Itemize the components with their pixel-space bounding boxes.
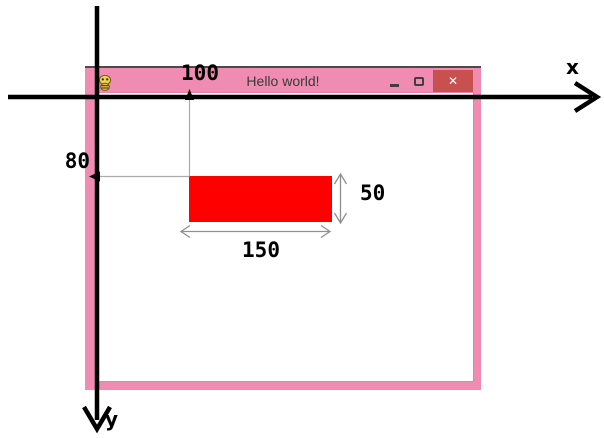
x-axis-label: x: [566, 57, 579, 77]
minimize-button[interactable]: [390, 84, 399, 87]
app-window: Hello world! ✕: [85, 66, 481, 390]
red-rectangle: [189, 176, 332, 222]
y-axis-label: y: [105, 409, 118, 429]
diagram-canvas: Hello world! ✕: [0, 0, 604, 438]
annotation-y-position: 80: [52, 150, 90, 173]
window-client-area: [96, 92, 474, 382]
maximize-button[interactable]: [414, 77, 424, 86]
window-titlebar[interactable]: Hello world! ✕: [85, 66, 481, 92]
annotation-x-position: 100: [171, 62, 229, 85]
close-button[interactable]: ✕: [433, 70, 473, 92]
annotation-rect-height: 50: [360, 182, 385, 205]
annotation-rect-width: 150: [231, 239, 291, 262]
close-icon: ✕: [448, 75, 458, 87]
